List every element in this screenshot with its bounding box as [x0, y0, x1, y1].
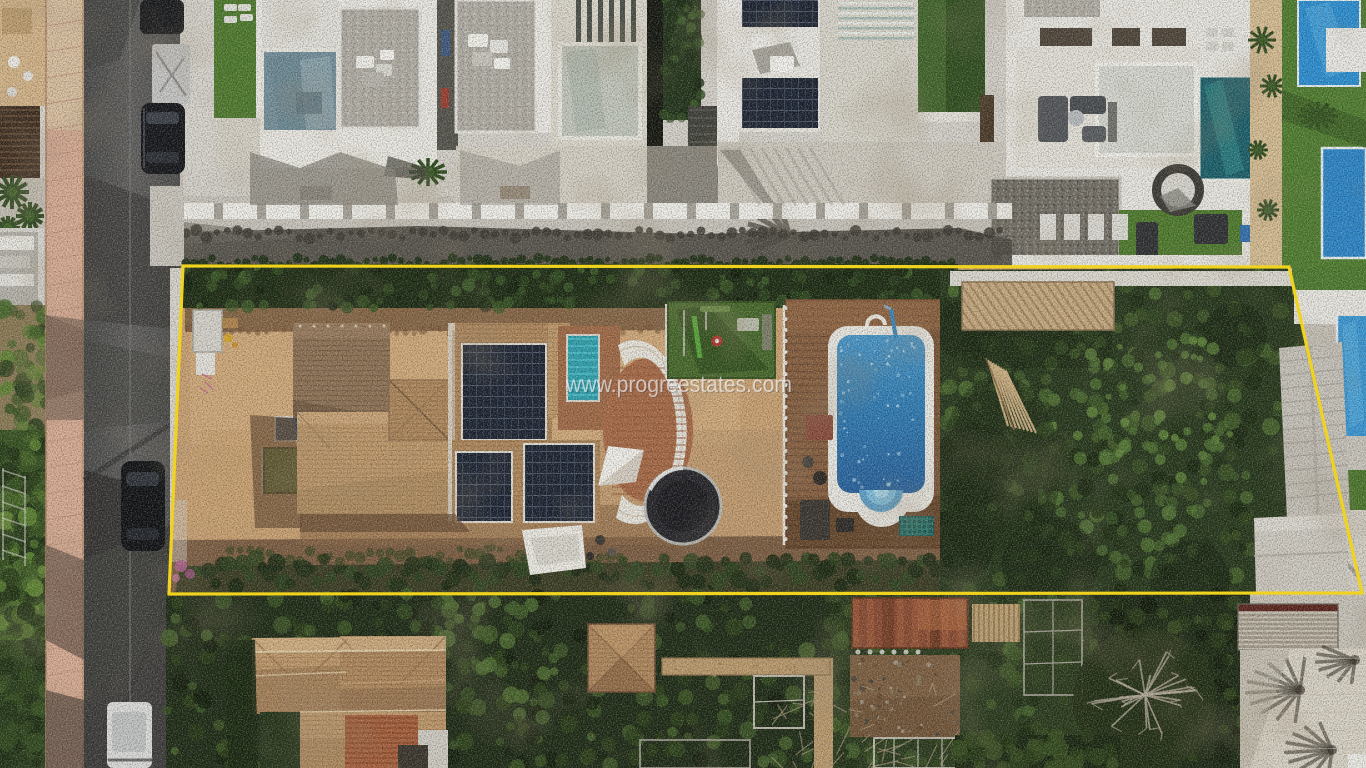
svg-text:www.progreestates.com: www.progreestates.com — [565, 371, 792, 397]
